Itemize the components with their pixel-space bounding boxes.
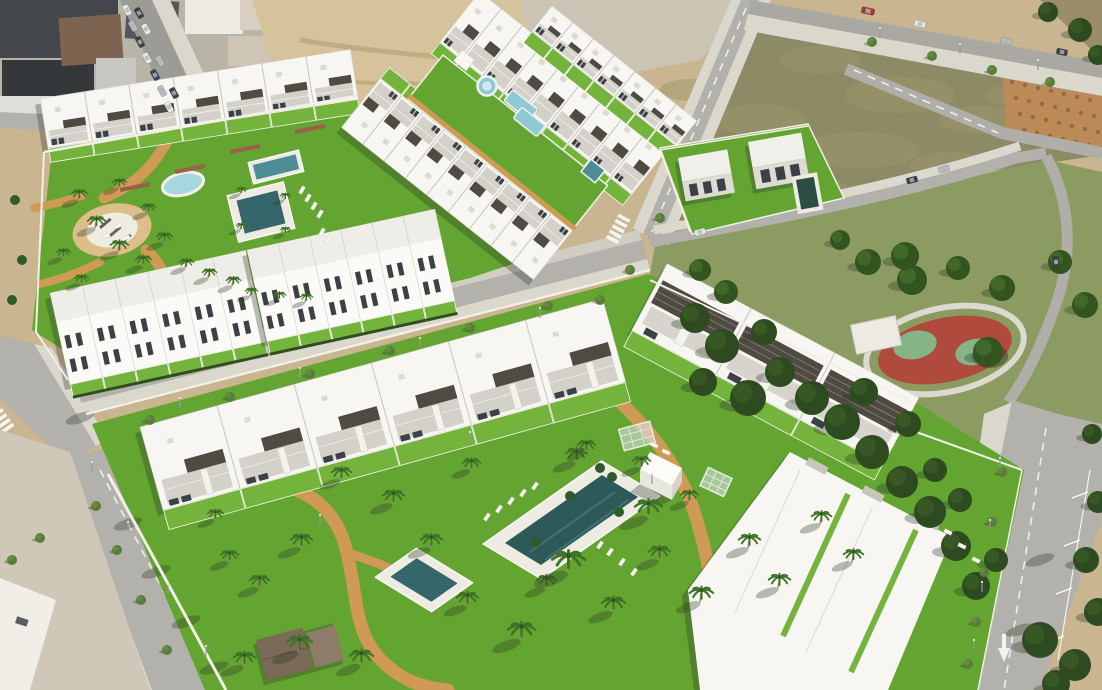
- shrub: [607, 472, 617, 482]
- lamp-head: [973, 639, 975, 641]
- street-tree-highlight: [656, 214, 662, 220]
- palm-crown: [208, 270, 210, 272]
- street-tree-highlight: [964, 660, 970, 666]
- lamp-head: [959, 43, 961, 45]
- dirt-mound: [1053, 105, 1057, 109]
- lamp-head: [205, 645, 207, 647]
- street-tree-highlight: [972, 618, 978, 624]
- park-tree-highlight: [691, 261, 703, 273]
- palm-crown: [700, 589, 703, 592]
- roof-ac-unit: [232, 79, 239, 85]
- window: [235, 109, 241, 116]
- lamp-head: [539, 307, 541, 309]
- palm-crown: [647, 502, 651, 506]
- palm-crown: [258, 577, 261, 580]
- palm-crown: [232, 278, 234, 280]
- street-tree-highlight: [980, 568, 986, 574]
- lamp-head: [651, 473, 653, 475]
- lamp-head: [1037, 59, 1039, 61]
- lamp-head: [167, 583, 169, 585]
- palm-crown: [285, 194, 287, 196]
- lamp-head: [91, 461, 93, 463]
- palm-crown: [470, 460, 473, 463]
- palm-crown: [285, 228, 287, 230]
- street-tree-highlight: [466, 324, 472, 330]
- palm-crown: [243, 654, 246, 657]
- palm-crown: [80, 276, 82, 278]
- pine-tree-highlight: [1044, 672, 1059, 687]
- lamp-head: [999, 457, 1001, 459]
- pine-tree-highlight: [1070, 20, 1083, 33]
- car-glass: [1054, 260, 1058, 265]
- arrow-tail: [1002, 634, 1006, 648]
- street-tree-highlight: [36, 534, 42, 540]
- palm-crown: [466, 594, 469, 597]
- shrub: [17, 255, 27, 265]
- street-tree-highlight: [92, 502, 98, 508]
- town-roof: [185, 0, 243, 34]
- pine-tree-highlight: [1084, 426, 1095, 437]
- window: [228, 110, 234, 117]
- window: [51, 139, 57, 146]
- dirt-mound: [1023, 83, 1027, 87]
- dirt-mound: [1088, 98, 1092, 102]
- dirt-mound: [1031, 115, 1035, 119]
- window: [140, 125, 146, 132]
- palm-crown: [360, 652, 363, 655]
- pine-tree-highlight: [950, 490, 963, 503]
- pine-tree-highlight: [798, 384, 817, 403]
- pine-tree-highlight: [888, 468, 906, 486]
- palm-crown: [520, 625, 524, 629]
- dirt-mound: [1096, 130, 1100, 134]
- palm-crown: [585, 442, 588, 445]
- street-tree-highlight: [146, 416, 152, 422]
- lamp-head: [127, 521, 129, 523]
- palm-crown: [78, 191, 80, 193]
- palm-crown: [430, 536, 433, 539]
- dirt-mound: [1010, 80, 1014, 84]
- street-tree-highlight: [928, 52, 934, 58]
- lamp-head: [879, 27, 881, 29]
- pine-tree-highlight: [897, 413, 911, 427]
- park-tree-highlight: [991, 277, 1005, 291]
- park-tree-highlight: [893, 244, 908, 259]
- lamp-head: [319, 514, 321, 516]
- palm-crown: [820, 513, 823, 516]
- dirt-mound: [1018, 112, 1022, 116]
- pine-tree-highlight: [708, 332, 727, 351]
- pine-tree-highlight: [682, 305, 699, 322]
- roof-ac-unit: [276, 71, 283, 77]
- palm-crown: [688, 492, 691, 495]
- palm-crown: [118, 242, 121, 245]
- street-tree-highlight: [998, 468, 1004, 474]
- lamp-head: [989, 519, 991, 521]
- palm-crown: [852, 551, 855, 554]
- shrub: [565, 491, 575, 501]
- palm-crown: [241, 224, 243, 226]
- palm-crown: [300, 536, 303, 539]
- street-tree-highlight: [626, 266, 632, 272]
- palm-crown: [392, 492, 395, 495]
- pine-tree-highlight: [964, 574, 979, 589]
- palm-crown: [640, 458, 643, 461]
- street-tree-highlight: [596, 296, 602, 302]
- dirt-mound: [1092, 114, 1096, 118]
- window: [147, 123, 153, 130]
- street-tree-highlight: [163, 646, 169, 652]
- roof-ac-unit: [143, 93, 150, 99]
- street-tree-highlight: [1046, 78, 1052, 84]
- lamp-head: [299, 367, 301, 369]
- palm-crown: [612, 599, 615, 602]
- dirt-mound: [1070, 124, 1074, 128]
- shrub: [10, 195, 20, 205]
- palm-crown: [306, 295, 308, 297]
- pine-tree-highlight: [1040, 4, 1051, 15]
- palm-crown: [62, 250, 64, 252]
- villa-1: [674, 149, 736, 206]
- pine-tree-highlight: [1075, 549, 1089, 563]
- street-tree-highlight: [226, 393, 232, 399]
- window: [58, 137, 64, 144]
- dirt-mound: [1083, 127, 1087, 131]
- palm-crown: [340, 469, 343, 472]
- palm-crown: [298, 638, 302, 642]
- shrub: [7, 295, 17, 305]
- pine-tree-highlight: [1061, 651, 1079, 669]
- pine-tree-highlight: [925, 460, 938, 473]
- park-tree-highlight: [716, 282, 729, 295]
- dirt-mound: [1040, 102, 1044, 106]
- dirt-mound: [1027, 99, 1031, 103]
- window: [184, 118, 190, 125]
- palm-crown: [214, 511, 216, 513]
- palm-crown: [163, 234, 165, 236]
- roof-ac-unit: [187, 86, 194, 92]
- palm-crown: [658, 548, 661, 551]
- dirt-mound: [1014, 96, 1018, 100]
- lamp-head: [469, 431, 471, 433]
- park-tree-highlight: [832, 232, 843, 243]
- dirt-mound: [1075, 95, 1079, 99]
- park-tree-highlight: [975, 339, 992, 356]
- pine-tree-highlight: [733, 383, 753, 403]
- lamp-head: [981, 581, 983, 583]
- roof-ac-unit: [320, 64, 327, 70]
- lamp-head: [419, 337, 421, 339]
- pine-tree-highlight: [1025, 625, 1045, 645]
- palm-crown: [228, 552, 231, 555]
- roof-ac-unit: [99, 100, 106, 106]
- shrub: [614, 507, 624, 517]
- pine-tree-highlight: [767, 359, 784, 376]
- window: [103, 130, 109, 137]
- dirt-mound: [1062, 92, 1066, 96]
- pine-tree-highlight: [691, 370, 706, 385]
- pine-tree-highlight: [1086, 600, 1101, 615]
- pine-tree-highlight: [852, 380, 867, 395]
- pine-tree-highlight: [916, 498, 934, 516]
- pine-tree-highlight: [986, 550, 999, 563]
- street-tree-highlight: [8, 556, 14, 562]
- park-tree-highlight: [948, 258, 961, 271]
- street-tree-highlight: [544, 302, 550, 308]
- shrub: [595, 463, 605, 473]
- park-tree-highlight: [1074, 294, 1088, 308]
- window: [95, 132, 101, 139]
- palm-crown: [748, 536, 751, 539]
- dirt-mound: [1066, 108, 1070, 112]
- aerial-development-render: Aerial 3D render of a coastal residentia…: [0, 0, 1102, 690]
- pine-tree-highlight: [943, 533, 960, 550]
- street-tree-highlight: [306, 370, 312, 376]
- dirt-mound: [1049, 89, 1053, 93]
- palm-crown: [778, 576, 781, 579]
- street-tree-highlight: [386, 347, 392, 353]
- palm-crown: [185, 260, 187, 262]
- pine-tree-highlight: [827, 407, 847, 427]
- street-tree-highlight: [988, 66, 994, 72]
- palm-crown: [566, 553, 571, 558]
- palm-crown: [251, 289, 253, 291]
- car: [1053, 256, 1060, 267]
- window: [191, 116, 197, 123]
- pine-tree-highlight: [1090, 47, 1101, 58]
- roof-ac-unit: [54, 107, 61, 113]
- street-tree-highlight: [868, 38, 874, 44]
- palm-crown: [142, 257, 144, 259]
- palm-crown: [241, 188, 243, 190]
- pine-tree-highlight: [858, 438, 877, 457]
- pine-tree-highlight: [1089, 493, 1101, 505]
- dirt-mound: [1057, 121, 1061, 125]
- street-tree-highlight: [113, 546, 119, 552]
- dirt-mound: [1079, 111, 1083, 115]
- strip-round-pool-center: [482, 81, 492, 91]
- dirt-mound: [1044, 118, 1048, 122]
- palm-crown: [118, 180, 120, 182]
- palm-crown: [95, 218, 98, 221]
- palm-crown: [279, 293, 281, 295]
- park-tree-highlight: [857, 251, 871, 265]
- dirt-mound: [1036, 86, 1040, 90]
- pine-tree-highlight: [753, 321, 767, 335]
- lamp-head: [179, 397, 181, 399]
- screenshot-stage: Aerial 3D render of a coastal residentia…: [0, 0, 1102, 690]
- shrub: [531, 537, 541, 547]
- street-tree-highlight: [137, 596, 143, 602]
- palm-crown: [147, 205, 149, 207]
